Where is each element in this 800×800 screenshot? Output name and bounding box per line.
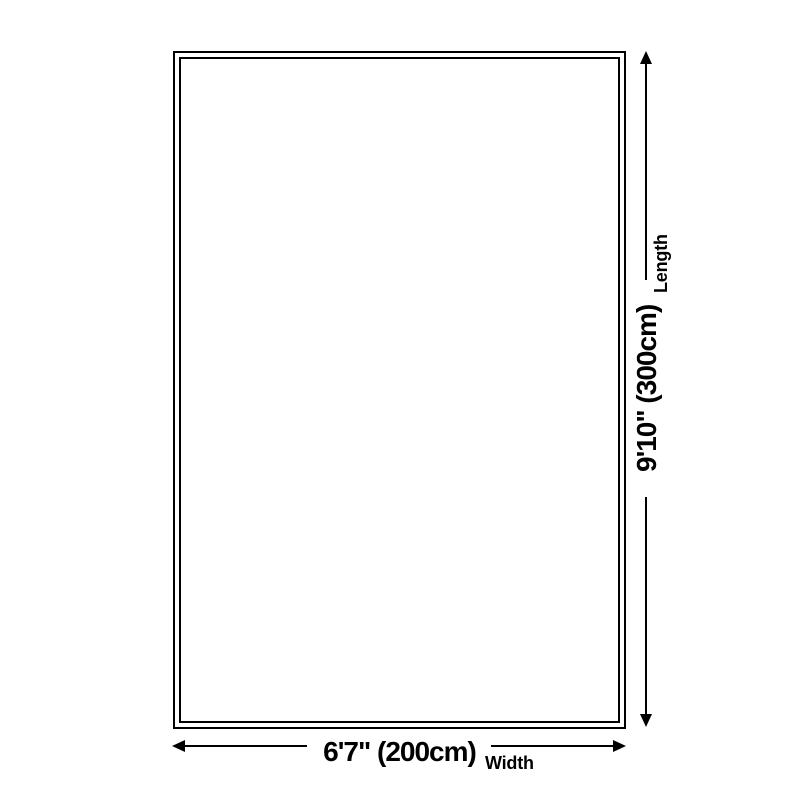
width-value: 6'7" (200cm) (173, 738, 626, 766)
length-value: 9'10" (300cm) (633, 308, 661, 472)
rug-dimension-diagram: Length 9'10" (300cm) 6'7" (200cm) Width (0, 0, 800, 800)
width-axis-label: Width (485, 753, 534, 773)
arrow-right-icon (613, 740, 626, 752)
length-arrow-line-bottom (645, 497, 647, 714)
length-axis-label: Length (652, 237, 670, 293)
length-arrow-line-top (645, 63, 647, 280)
rug-outline-inner (179, 57, 620, 723)
rug-outline (173, 51, 626, 729)
width-arrow-line-right (491, 745, 613, 747)
arrow-down-icon (640, 714, 652, 727)
